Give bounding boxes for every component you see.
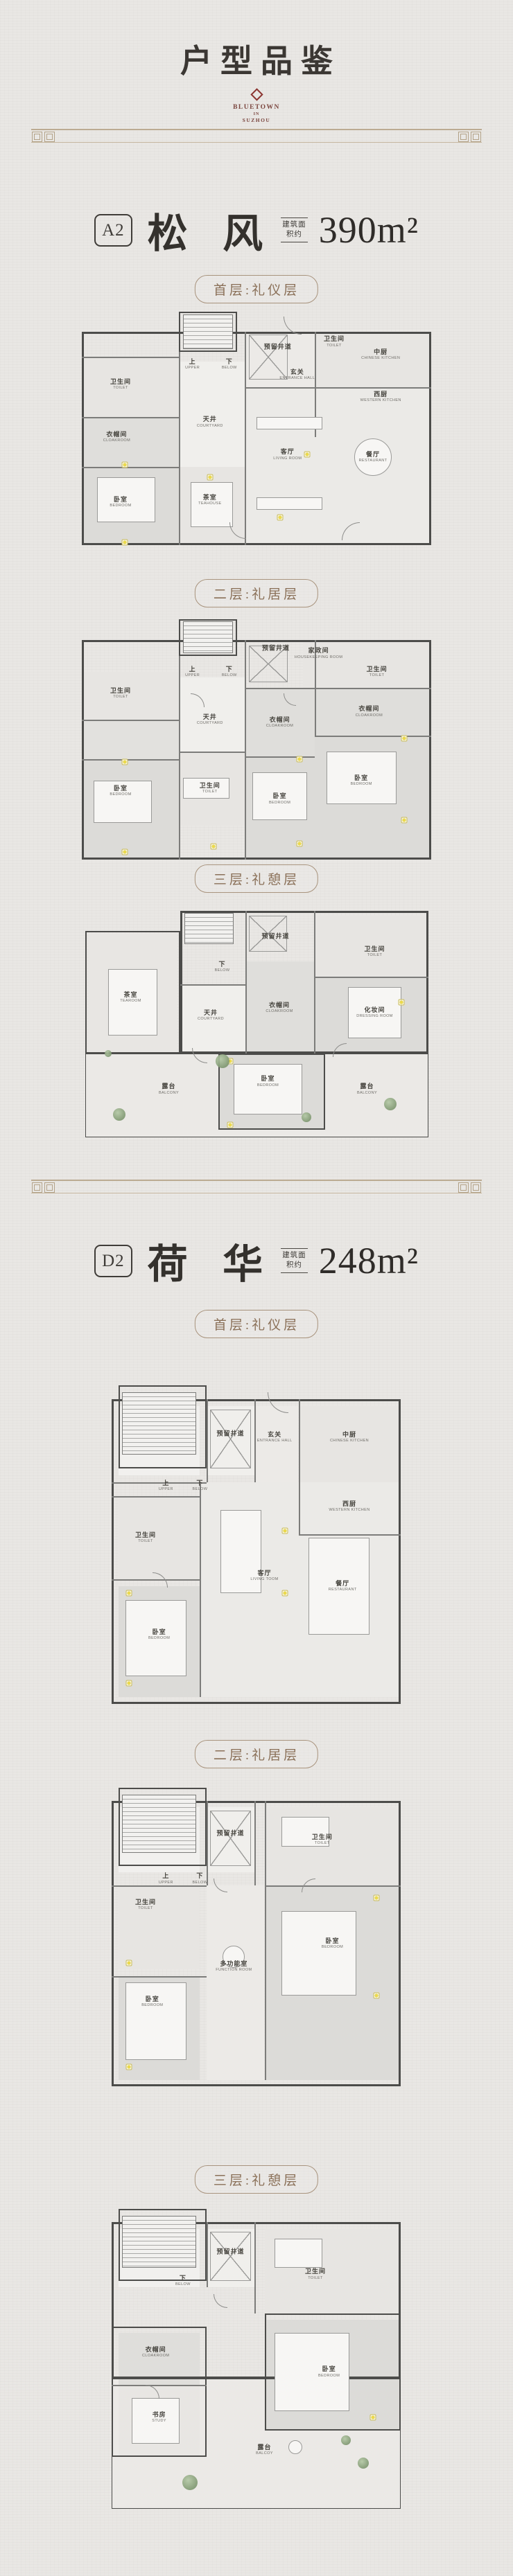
tree-icon — [358, 2458, 369, 2469]
room-label: 玄关ENTRANCE HALL — [279, 368, 315, 380]
room-label-cn: 卫生间 — [324, 335, 345, 343]
room-label-en: COURTYARD — [197, 423, 223, 428]
room-label-en: BALCONY — [357, 1091, 377, 1096]
wall-line — [315, 688, 431, 689]
room-label: 卧室BEDROOM — [322, 1937, 343, 1950]
unit-name: 荷 华 — [144, 1232, 276, 1290]
room-label-en: BEDROOM — [141, 2003, 163, 2008]
room-label-cn: 玄关 — [279, 368, 315, 375]
room-label: 衣帽间CLOAKROOM — [356, 705, 383, 718]
ceiling-light-icon — [374, 1992, 380, 1998]
room-label-en: ENTRANCE HALL — [279, 376, 315, 381]
room-label-cn: 卫生间 — [200, 782, 220, 790]
room-label-cn: 卫生间 — [305, 2268, 326, 2275]
wall-line — [245, 640, 246, 860]
room-label-en: LIVING TOOM — [250, 1577, 278, 1582]
wall-line — [245, 911, 247, 1054]
room-label-en: TOILET — [324, 344, 345, 348]
room-label-cn: 化妆间 — [356, 1006, 393, 1014]
wall-line — [299, 1534, 401, 1536]
room-label: 衣帽间CLOAKROOM — [266, 716, 293, 729]
room-label-cn: 露台 — [357, 1083, 377, 1090]
room-label-cn: 衣帽间 — [142, 2346, 169, 2354]
diamond-logo-icon — [250, 88, 263, 100]
room-label: 卧室BEDROOM — [110, 785, 131, 797]
room-label: 上UPPER — [159, 1872, 173, 1885]
divider-line — [31, 1180, 482, 1181]
room-label-cn: 卫生间 — [135, 1899, 156, 1906]
stairs — [122, 1795, 197, 1853]
room-label-cn: 预留井道 — [261, 932, 289, 940]
room-label-cn: 衣帽间 — [266, 716, 293, 724]
room-label-en: ENTRANCE HALL — [257, 1439, 293, 1444]
ceiling-light-icon — [125, 1960, 132, 1966]
room-label-en: TOILET — [305, 2276, 326, 2281]
room-label-en: BELOW — [222, 366, 237, 371]
wall-line — [207, 1399, 208, 1482]
ceiling-light-icon — [281, 1528, 288, 1534]
room-label: 卫生间TOILET — [312, 1833, 333, 1846]
wall-line — [82, 417, 179, 418]
tree-icon — [302, 1112, 311, 1122]
ceiling-light-icon — [399, 1000, 405, 1006]
room-label: 中厨CHINESE KITCHEN — [361, 348, 400, 360]
floor-tag: 二层:礼居层 — [195, 579, 318, 607]
brand-line-1: BLUETOWN — [0, 104, 513, 112]
wall-line — [314, 911, 315, 1054]
wall-line — [112, 1496, 200, 1498]
ceiling-light-icon — [401, 817, 407, 823]
room-label-cn: 卧室 — [141, 1996, 163, 2003]
room-label-cn: 下 — [192, 1480, 207, 1487]
room-label-en: RESTAURANT — [329, 1588, 357, 1592]
area-note: 建筑面 积约 — [281, 217, 308, 242]
room-label-cn: 露台 — [256, 2444, 273, 2451]
unit-name: 松 风 — [144, 201, 276, 259]
room-label-en: STUDY — [152, 2419, 166, 2424]
room-label-en: TOILET — [110, 386, 131, 391]
room-label-cn: 多功能室 — [216, 1960, 252, 1968]
room-label-cn: 卫生间 — [110, 687, 131, 695]
wall-line — [245, 387, 431, 389]
room-label-cn: 下 — [175, 2275, 191, 2282]
room-label: 卧室BEDROOM — [351, 774, 372, 787]
room-label-cn: 卫生间 — [135, 1531, 156, 1539]
room-label: 卧室BEDROOM — [257, 1075, 279, 1087]
wall-line — [82, 759, 179, 761]
floor-tag: 首层:礼仪层 — [195, 275, 318, 303]
room-label-cn: 预留井道 — [264, 343, 292, 350]
room-label: 卫生间TOILET — [110, 378, 131, 391]
room-label-en: COURTYARD — [198, 1017, 224, 1022]
wall-line — [112, 2385, 207, 2386]
room-label: 上UPPER — [159, 1480, 173, 1492]
room-label: 卫生间TOILET — [364, 945, 385, 958]
wall-line — [299, 1399, 300, 1534]
room-label-cn: 预留井道 — [216, 1829, 244, 1837]
ceiling-light-icon — [277, 514, 283, 520]
room-label-en: TEAROOM — [120, 999, 141, 1004]
room-label-en: BEDROOM — [322, 1945, 343, 1950]
tree-icon — [182, 2475, 198, 2490]
wall-line — [265, 1801, 266, 2079]
room-label: 预留井道 — [216, 2248, 244, 2255]
room-label-cn: 卧室 — [257, 1075, 279, 1083]
room-label-cn: 衣帽间 — [103, 431, 130, 438]
floor-plan-d2-f2: 上UPPER下BELOW预留井道卫生间TOILET卫生间TOILET卧室BEDR… — [78, 1782, 417, 2106]
divider — [31, 1180, 482, 1196]
room-label: 卧室BEDROOM — [141, 1996, 163, 2008]
room-label: 卫生间TOILET — [135, 1531, 156, 1544]
room-label-cn: 家政间 — [295, 647, 342, 655]
room-label-en: BELOW — [192, 1487, 207, 1492]
room-label-cn: 西厨 — [329, 1500, 369, 1508]
area-note: 建筑面 积约 — [281, 1248, 308, 1273]
room-label: 预留井道 — [216, 1430, 244, 1437]
stairs — [122, 1392, 197, 1455]
wall-line — [254, 1801, 256, 1885]
wall-line — [315, 736, 431, 737]
divider — [31, 129, 482, 145]
room-label-en: CHINESE KITCHEN — [361, 356, 400, 361]
ceiling-light-icon — [296, 756, 302, 763]
room-label-cn: 卧室 — [351, 774, 372, 782]
ornament-icon — [458, 132, 481, 142]
room-label-en: RESTAURANT — [359, 459, 388, 463]
floor-plan-a2-f1: 上UPPER下BELOW预留井道玄关ENTRANCE HALL卫生间TOILET… — [62, 312, 451, 562]
ceiling-light-icon — [121, 461, 128, 468]
floor-plan-a2-f2: 上UPPER下BELOW预留井道家政间HOUSEKEEPING ROOM卫生间T… — [62, 614, 451, 878]
wall-line — [180, 984, 245, 986]
ceiling-light-icon — [207, 474, 213, 480]
shaft-cross-icon — [210, 1811, 251, 1866]
room-label-en: BEDROOM — [351, 782, 372, 787]
room-label-en: WESTERN KITCHEN — [329, 1508, 369, 1513]
room-label-cn: 西厨 — [360, 391, 401, 398]
room-label-en: BELOW — [215, 968, 230, 973]
room-label-en: BEDROOM — [269, 801, 290, 806]
room-label-en: TOILET — [367, 673, 388, 678]
room-label-en: DRESSING ROOM — [356, 1014, 393, 1019]
room-label-en: CLOAKROOM — [103, 438, 130, 443]
ceiling-light-icon — [211, 844, 217, 850]
wall-line — [179, 752, 245, 753]
room-label-cn: 天井 — [197, 713, 223, 721]
room-label-cn: 天井 — [197, 416, 223, 423]
area-note-line: 积约 — [282, 1261, 306, 1270]
wall-line — [200, 1482, 201, 1697]
room-label-en: TEAHOUSE — [198, 501, 221, 506]
ceiling-light-icon — [121, 540, 128, 546]
floor-plan-d2-f3: 下BELOW预留井道卫生间TOILET衣帽间CLOAKROOM书房STUDY卧室… — [78, 2203, 417, 2528]
room-label-cn: 茶室 — [198, 493, 221, 501]
room-label-en: BELOW — [222, 673, 237, 678]
room-label: 卫生间TOILET — [135, 1899, 156, 1911]
unit-code-badge: D2 — [94, 1245, 132, 1277]
room-label-en: TOILET — [135, 1906, 156, 1911]
shaft-cross-icon — [210, 1410, 251, 1468]
room-label-cn: 预留井道 — [262, 644, 290, 652]
page-header: 户型品鉴 BLUETOWN IN SUZHOU — [0, 0, 513, 124]
room-label: 中厨CHINESE KITCHEN — [330, 1431, 369, 1444]
furniture — [234, 1064, 302, 1115]
ceiling-light-icon — [125, 2063, 132, 2070]
room-label: 家政间HOUSEKEEPING ROOM — [295, 647, 342, 659]
room-label-cn: 卧室 — [110, 496, 131, 504]
room-label-cn: 露台 — [159, 1083, 179, 1090]
room-label-en: TOILET — [364, 953, 385, 958]
ceiling-light-icon — [121, 849, 128, 855]
wall-line — [245, 688, 315, 689]
tree-icon — [384, 1098, 397, 1110]
room-label: 预留井道 — [264, 343, 292, 350]
room-label: 衣帽间CLOAKROOM — [103, 431, 130, 443]
room-label: 上UPPER — [185, 666, 200, 678]
room-label-cn: 餐厅 — [359, 451, 388, 459]
ceiling-light-icon — [401, 735, 407, 741]
room-label-cn: 卫生间 — [364, 945, 385, 953]
room-label: 玄关ENTRANCE HALL — [257, 1431, 293, 1444]
room-label-en: TOILET — [110, 695, 131, 700]
ornament-icon — [458, 1182, 481, 1193]
room-label-en: CLOAKROOM — [266, 1009, 293, 1014]
room-label: 西厨WESTERN KITCHEN — [329, 1500, 369, 1513]
unit-code-badge: A2 — [94, 214, 132, 247]
room-label: 预留井道 — [261, 932, 289, 940]
room-label: 西厨WESTERN KITCHEN — [360, 391, 401, 403]
brand-line-2: IN — [0, 112, 513, 118]
page-title: 户型品鉴 — [0, 36, 513, 82]
stairs — [183, 621, 234, 653]
ceiling-light-icon — [374, 1895, 380, 1901]
room-label-en: TOILET — [200, 790, 220, 794]
room-label: 下BELOW — [215, 961, 230, 973]
room-label-en: CHINESE KITCHEN — [330, 1439, 369, 1444]
room-label: 餐厅RESTAURANT — [359, 451, 388, 463]
room-label-cn: 衣帽间 — [266, 1001, 293, 1009]
room-label: 卧室BEDROOM — [148, 1628, 170, 1641]
room-label: 卧室BEDROOM — [318, 2365, 340, 2378]
room-label-cn: 中厨 — [330, 1431, 369, 1439]
room-label-en: BEDROOM — [148, 1636, 170, 1641]
room-label-cn: 上 — [159, 1872, 173, 1880]
room-label-cn: 卫生间 — [312, 1833, 333, 1841]
divider-line — [31, 1193, 482, 1193]
room-label: 客厅LIVING TOOM — [250, 1570, 278, 1582]
room-label-en: TOILET — [312, 1841, 333, 1846]
room-label-cn: 预留井道 — [216, 1430, 244, 1437]
room-label-en: UPPER — [159, 1487, 173, 1492]
section-title-d2: D2 荷 华 建筑面 积约 248m² — [0, 1232, 513, 1290]
room-label: 茶室TEAHOUSE — [198, 493, 221, 506]
floor-plan-a2-f3: 下BELOW预留井道茶室TEAROOM天井COURTYARD衣帽间CLOAKRO… — [66, 900, 447, 1155]
area-note-line: 建筑面 — [282, 1251, 306, 1261]
floor-tag: 二层:礼居层 — [195, 1740, 318, 1768]
room-label-cn: 书房 — [152, 2411, 166, 2419]
ornament-icon — [32, 1182, 55, 1193]
room-label-cn: 中厨 — [361, 348, 400, 355]
wall-line — [112, 1885, 207, 1887]
floor-tag: 首层:礼仪层 — [195, 1310, 318, 1338]
room-label-cn: 卫生间 — [367, 666, 388, 673]
room-label-cn: 上 — [185, 358, 200, 366]
wall-line — [254, 1399, 256, 1482]
ceiling-light-icon — [227, 1121, 233, 1128]
room-label: 天井COURTYARD — [197, 713, 223, 726]
floor-tag: 三层:礼憩层 — [195, 2165, 318, 2194]
wall-line — [265, 1885, 401, 1887]
room-label-cn: 预留井道 — [216, 2248, 244, 2255]
room-label: 卫生间TOILET — [367, 666, 388, 678]
room-label: 下BELOW — [222, 358, 237, 371]
room-label: 天井COURTYARD — [198, 1009, 224, 1022]
wall-line — [245, 756, 315, 758]
room-label-en: BALCONY — [159, 1091, 179, 1096]
brand-line-3: SUZHOU — [0, 117, 513, 123]
room-label: 预留井道 — [262, 644, 290, 652]
room-label: 卧室BEDROOM — [269, 792, 290, 805]
room-label-cn: 客厅 — [250, 1570, 278, 1577]
room-label: 书房STUDY — [152, 2411, 166, 2424]
room-label: 多功能室FUNCTION ROOM — [216, 1960, 252, 1973]
brand-logo: BLUETOWN IN SUZHOU — [0, 104, 513, 124]
section-title-a2: A2 松 风 建筑面 积约 390m² — [0, 201, 513, 259]
wall-line — [179, 656, 180, 860]
wall-line — [82, 720, 179, 721]
room-label-en: BEDROOM — [318, 2374, 340, 2379]
room-label-cn: 卧室 — [318, 2365, 340, 2373]
room-label-cn: 卫生间 — [110, 378, 131, 386]
room-label-en: BELOW — [192, 1881, 207, 1885]
room-label-cn: 下 — [222, 666, 237, 673]
room-label-cn: 茶室 — [120, 991, 141, 999]
divider-line — [31, 142, 482, 143]
floor-plan-d2-f1: 上UPPER下BELOW预留井道玄关ENTRANCE HALL中厨CHINESE… — [78, 1378, 417, 1725]
room-label: 衣帽间CLOAKROOM — [266, 1001, 293, 1013]
ornament-icon — [32, 132, 55, 142]
room-label: 卧室BEDROOM — [110, 496, 131, 508]
ceiling-light-icon — [370, 2415, 376, 2421]
tree-icon — [113, 1108, 125, 1121]
room-label: 餐厅RESTAURANT — [329, 1580, 357, 1592]
ceiling-light-icon — [296, 841, 302, 847]
room-label-cn: 下 — [222, 358, 237, 366]
room-label-en: TOILET — [135, 1539, 156, 1544]
room-label: 天井COURTYARD — [197, 416, 223, 428]
room-label-en: CLOAKROOM — [266, 724, 293, 729]
room-label-cn: 下 — [215, 961, 230, 968]
room-label-cn: 客厅 — [273, 448, 302, 456]
room-label: 下BELOW — [192, 1872, 207, 1885]
furniture-table — [288, 2440, 302, 2454]
stairs — [122, 2216, 197, 2268]
ceiling-light-icon — [304, 452, 310, 458]
stairs — [183, 314, 234, 350]
room-label: 露台BALCOY — [256, 2444, 273, 2456]
furniture — [256, 417, 322, 429]
wall-line — [82, 467, 179, 468]
room-label: 茶室TEAROOM — [120, 991, 141, 1004]
room-label-en: BEDROOM — [110, 792, 131, 797]
shaft-cross-icon — [210, 2232, 251, 2281]
room-label-en: CLOAKROOM — [142, 2354, 169, 2359]
furniture — [275, 2239, 322, 2268]
room-label: 卫生间TOILET — [305, 2268, 326, 2280]
wall-line — [254, 2222, 256, 2313]
room-label-cn: 卧室 — [322, 1937, 343, 1945]
furniture — [125, 1982, 186, 2060]
room-label-en: COURTYARD — [197, 721, 223, 726]
room-label-en: BEDROOM — [110, 504, 131, 508]
room-label-en: LIVING ROOM — [273, 456, 302, 461]
wall-line — [82, 357, 179, 358]
furniture — [281, 1911, 356, 1996]
wall-line — [207, 2222, 208, 2287]
wall-line — [245, 332, 246, 545]
room-label-cn: 天井 — [198, 1009, 224, 1017]
ceiling-light-icon — [125, 1680, 132, 1687]
room-label: 下BELOW — [192, 1480, 207, 1492]
stairs — [184, 913, 234, 943]
room-label: 露台BALCONY — [159, 1083, 179, 1095]
tree-icon — [216, 1054, 229, 1068]
area-value: 390m² — [319, 208, 419, 251]
ceiling-light-icon — [121, 758, 128, 765]
room-label: 卫生间TOILET — [324, 335, 345, 348]
room-label: 预留井道 — [216, 1829, 244, 1837]
room-label-en: BALCOY — [256, 2451, 273, 2456]
room-label-en: HOUSEKEEPING ROOM — [295, 655, 342, 659]
room-label-en: UPPER — [185, 366, 200, 371]
furniture — [256, 497, 322, 510]
room-label-en: CLOAKROOM — [356, 713, 383, 718]
tree-icon — [105, 1050, 112, 1057]
room-label-en: BEDROOM — [257, 1083, 279, 1087]
ceiling-light-icon — [281, 1590, 288, 1597]
room-label-cn: 卧室 — [269, 792, 290, 800]
divider-line — [31, 129, 482, 130]
room-label-en: BELOW — [175, 2282, 191, 2287]
ceiling-light-icon — [125, 1590, 132, 1597]
room-label: 衣帽间CLOAKROOM — [142, 2346, 169, 2359]
wall-line — [112, 1976, 207, 1978]
room-label-cn: 上 — [185, 666, 200, 673]
room-label-en: UPPER — [159, 1881, 173, 1885]
area-note-line: 积约 — [282, 230, 306, 240]
room-label-en: FUNCTION ROOM — [216, 1968, 252, 1973]
room-label: 上UPPER — [185, 358, 200, 371]
area-note-line: 建筑面 — [282, 220, 306, 230]
room-label-cn: 餐厅 — [329, 1580, 357, 1588]
room-label-cn: 上 — [159, 1480, 173, 1487]
room-label-cn: 卧室 — [148, 1628, 170, 1636]
room-label: 客厅LIVING ROOM — [273, 448, 302, 461]
room-label-cn: 衣帽间 — [356, 705, 383, 713]
room-label: 化妆间DRESSING ROOM — [356, 1006, 393, 1019]
room-label: 卫生间TOILET — [200, 782, 220, 794]
room-label-en: UPPER — [185, 673, 200, 678]
wall-line — [314, 977, 428, 978]
wall-line — [179, 352, 180, 545]
room-label: 露台BALCONY — [357, 1083, 377, 1095]
room-label-cn: 卧室 — [110, 785, 131, 792]
room-label-en: WESTERN KITCHEN — [360, 398, 401, 403]
room-label: 下BELOW — [175, 2275, 191, 2287]
room-label-cn: 下 — [192, 1872, 207, 1880]
room-label: 下BELOW — [222, 666, 237, 678]
room-label: 卫生间TOILET — [110, 687, 131, 700]
area-value: 248m² — [319, 1239, 419, 1282]
